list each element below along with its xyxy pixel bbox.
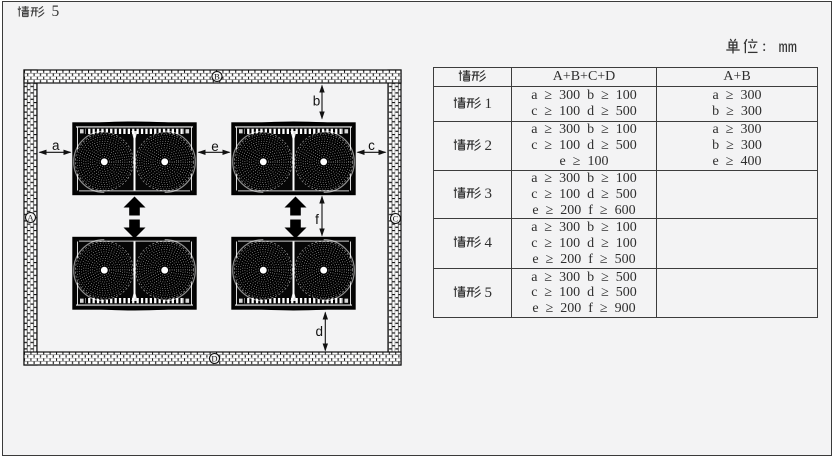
svg-text:f: f bbox=[315, 212, 319, 227]
svg-text:D: D bbox=[211, 353, 217, 363]
svg-text:e: e bbox=[211, 139, 219, 154]
svg-text:d: d bbox=[316, 324, 324, 339]
svg-text:B: B bbox=[214, 71, 220, 81]
svg-text:b: b bbox=[313, 94, 321, 109]
svg-text:a: a bbox=[52, 138, 60, 153]
svg-text:A: A bbox=[27, 212, 34, 222]
svg-text:c: c bbox=[368, 138, 375, 153]
svg-text:C: C bbox=[393, 213, 399, 223]
